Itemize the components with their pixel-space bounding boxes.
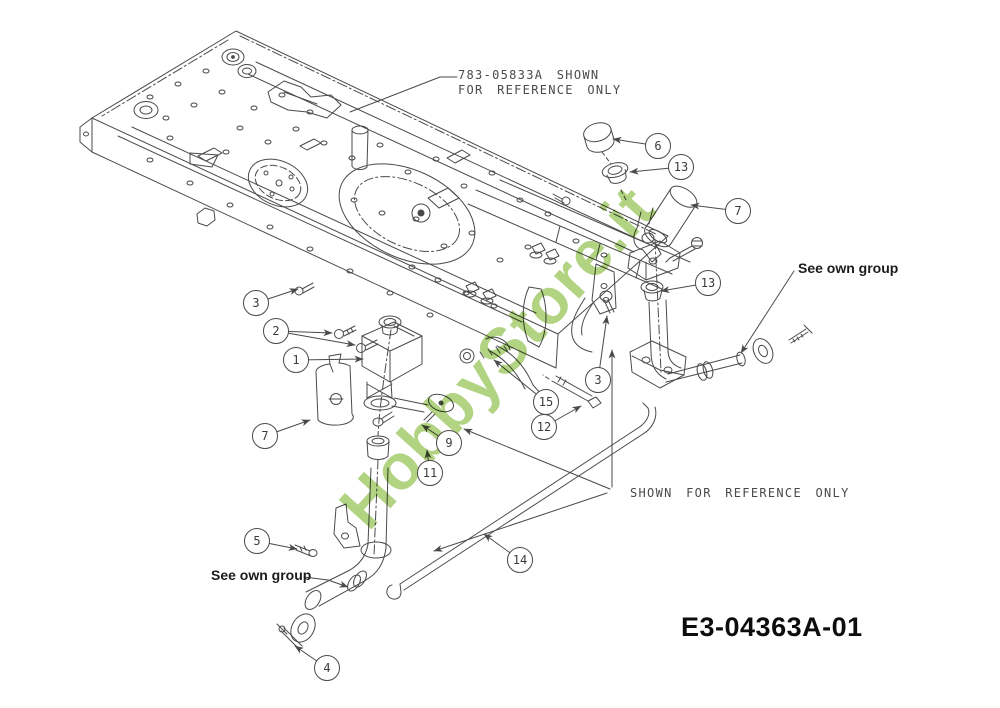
callout-number: 11	[423, 466, 437, 480]
see-own-group-label-left: See own group	[211, 567, 311, 583]
callout-balloon-3-left: 3	[243, 290, 269, 316]
axle-pivot-assembly-drawing	[628, 238, 812, 389]
parts-diagram-page: HobbyStore.it 783-05833A SHOWN FOR REFER…	[0, 0, 1000, 708]
reference-note-top-line2: FOR REFERENCE ONLY	[458, 83, 621, 98]
callout-balloon-2: 2	[263, 318, 289, 344]
callout-leader-lines	[256, 139, 738, 668]
reference-note-middle: SHOWN FOR REFERENCE ONLY	[630, 486, 850, 501]
callout-number: 4	[323, 661, 330, 675]
callout-balloon-12: 12	[531, 414, 557, 440]
callout-balloon-4: 4	[314, 655, 340, 681]
callout-number: 2	[272, 324, 279, 338]
reference-note-top-line1: 783-05833A SHOWN	[458, 68, 621, 83]
callout-number: 15	[539, 395, 553, 409]
callout-balloon-11: 11	[417, 460, 443, 486]
callout-balloon-9: 9	[436, 430, 462, 456]
see-own-group-label-right: See own group	[798, 260, 898, 276]
exploded-view-drawing	[0, 0, 1000, 708]
steering-column-assembly-drawing	[277, 264, 616, 649]
callout-number: 6	[654, 139, 661, 153]
callout-balloon-7-left: 7	[252, 423, 278, 449]
callout-balloon-13-right: 13	[695, 270, 721, 296]
callout-number: 3	[594, 373, 601, 387]
callout-number: 9	[445, 436, 452, 450]
note-leader-lines	[304, 77, 794, 587]
callout-number: 1	[292, 353, 299, 367]
drawing-number: E3-04363A-01	[681, 612, 863, 643]
callout-number: 14	[513, 553, 527, 567]
callout-balloon-14: 14	[507, 547, 533, 573]
callout-balloon-13-top: 13	[668, 154, 694, 180]
callout-number: 7	[734, 204, 741, 218]
callout-number: 12	[537, 420, 551, 434]
callout-balloon-7-top: 7	[725, 198, 751, 224]
callout-balloon-1: 1	[283, 347, 309, 373]
callout-number: 3	[252, 296, 259, 310]
callout-balloon-3-middle: 3	[585, 367, 611, 393]
callout-number: 13	[701, 276, 715, 290]
callout-number: 13	[674, 160, 688, 174]
callout-number: 5	[253, 534, 260, 548]
callout-balloon-6: 6	[645, 133, 671, 159]
callout-number: 7	[261, 429, 268, 443]
callout-balloon-15: 15	[533, 389, 559, 415]
reference-note-top: 783-05833A SHOWN FOR REFERENCE ONLY	[458, 68, 621, 97]
callout-balloon-5: 5	[244, 528, 270, 554]
